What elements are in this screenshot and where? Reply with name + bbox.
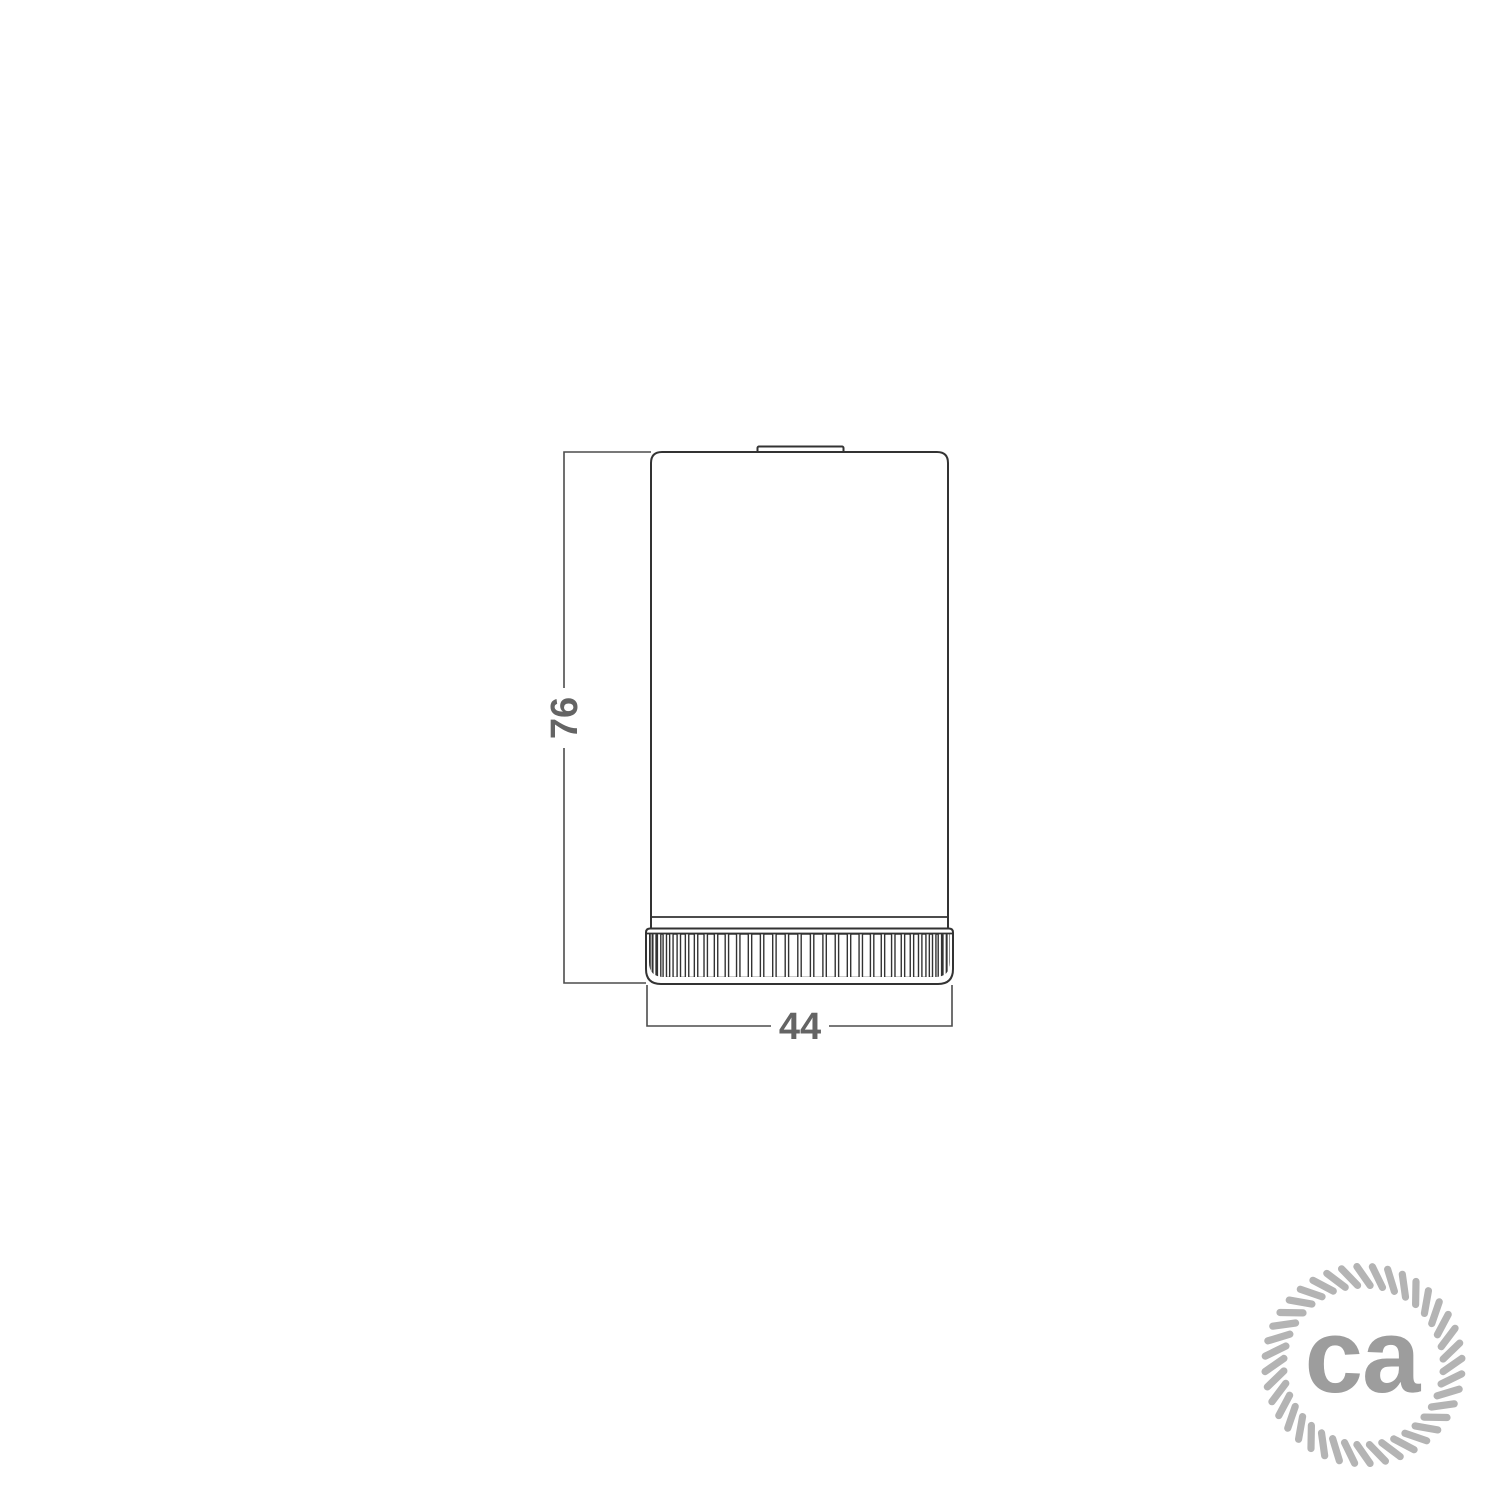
- brand-logo: ca: [1265, 1267, 1462, 1464]
- knurl-rib: [718, 934, 725, 978]
- height-dimension: 76: [544, 452, 652, 983]
- rope-strand: [1372, 1267, 1382, 1288]
- knurl-rib: [661, 934, 663, 978]
- rope-strand: [1273, 1323, 1296, 1326]
- rope-strand: [1300, 1289, 1322, 1296]
- knurl-rib: [946, 934, 947, 978]
- knurl-rib: [839, 934, 848, 978]
- brand-logo-text: ca: [1305, 1298, 1422, 1415]
- knurl-rib: [826, 934, 835, 978]
- rope-strand: [1424, 1291, 1428, 1314]
- rope-strand: [1405, 1433, 1427, 1440]
- rope-strand: [1432, 1302, 1439, 1324]
- width-dimension: 44: [647, 985, 952, 1048]
- knurl-rib: [942, 934, 943, 978]
- technical-drawing-page: 76 44 ca: [0, 0, 1500, 1500]
- width-dimension-label: 44: [779, 1006, 821, 1048]
- height-dimension-label: 76: [544, 697, 586, 739]
- knurl-rib: [652, 934, 653, 978]
- knurl-rib: [689, 934, 695, 978]
- knurl-rib: [789, 934, 798, 978]
- rope-strand: [1437, 1389, 1459, 1396]
- knurl-rib: [814, 934, 823, 978]
- knurl-rib: [885, 934, 892, 978]
- knurl-rib: [776, 934, 785, 978]
- rope-strand: [1388, 1269, 1395, 1291]
- knurl-rib: [707, 934, 714, 978]
- rope-strand: [1313, 1280, 1333, 1291]
- rope-strand: [1441, 1374, 1462, 1384]
- rope-strand: [1394, 1439, 1414, 1450]
- knurl-rib: [922, 934, 926, 978]
- knurl-rib: [862, 934, 870, 978]
- rope-strand: [1288, 1406, 1295, 1428]
- knurl-rib: [895, 934, 901, 978]
- rope-strand: [1268, 1334, 1290, 1341]
- rope-strand: [1279, 1395, 1290, 1415]
- rope-strand: [1265, 1346, 1286, 1356]
- rope-strand: [1299, 1417, 1303, 1440]
- knurl-rib: [929, 934, 932, 978]
- knurl-rib: [673, 934, 677, 978]
- rope-strand: [1333, 1439, 1340, 1461]
- dimension-drawing: 76 44 ca: [0, 0, 1500, 1500]
- rope-strand: [1437, 1314, 1448, 1334]
- knurl-rib: [764, 934, 773, 978]
- knurl-rib: [681, 934, 686, 978]
- rope-strand: [1415, 1426, 1438, 1430]
- knurl-rib: [698, 934, 704, 978]
- knurl-rib: [752, 934, 761, 978]
- knurl-rib: [656, 934, 657, 978]
- rope-strand: [1431, 1404, 1454, 1407]
- knurled-ring: [646, 929, 954, 985]
- knurl-rib: [740, 934, 748, 978]
- knurl-rib: [905, 934, 911, 978]
- knurl-rib: [666, 934, 669, 978]
- knurl-rib: [851, 934, 859, 978]
- rope-strand: [1345, 1443, 1355, 1464]
- rope-strand: [1402, 1274, 1405, 1297]
- knurl-ribs: [648, 934, 954, 978]
- knurl-rib: [936, 934, 938, 978]
- knurl-rib: [801, 934, 810, 978]
- rope-strand: [1322, 1433, 1325, 1456]
- knurl-rib: [874, 934, 881, 978]
- knurl-rib: [729, 934, 737, 978]
- lamp-holder-drawing: [646, 447, 954, 985]
- lamp-holder-body: [651, 452, 948, 929]
- knurl-rib: [914, 934, 919, 978]
